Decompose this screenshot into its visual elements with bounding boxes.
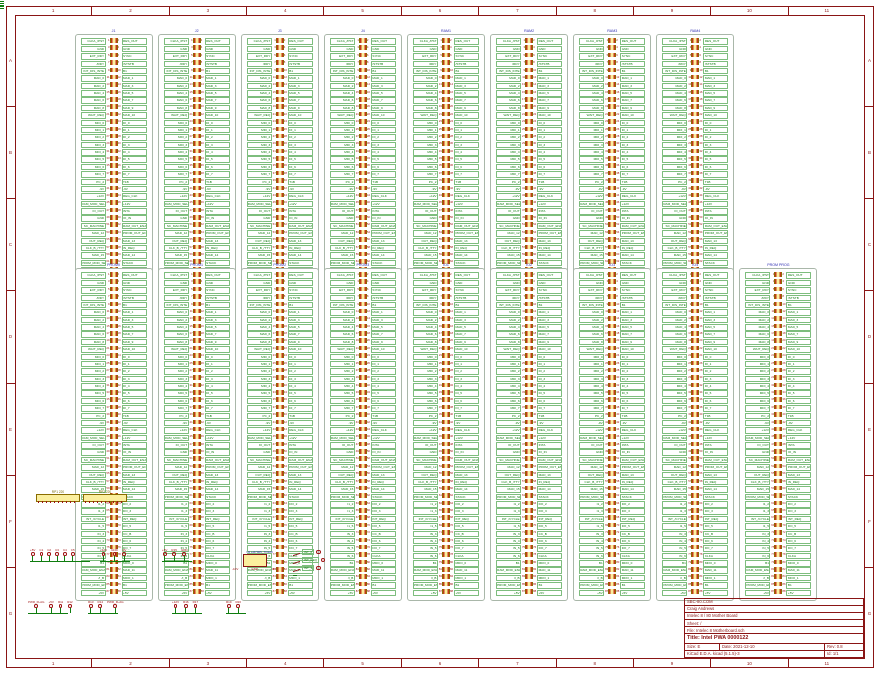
pin-net-label-left[interactable]: MDI_2 bbox=[330, 134, 355, 141]
pin-net-label-left[interactable]: IN_6 bbox=[579, 553, 604, 560]
pin-net-label-left[interactable]: +12V bbox=[745, 427, 770, 434]
pin-net-label-right[interactable]: DI_3 bbox=[205, 376, 230, 383]
pin-net-label-left[interactable]: MDI_6 bbox=[496, 164, 521, 171]
pin-net-label-left[interactable]: WAIT_REQ bbox=[164, 346, 189, 353]
switch-glyph[interactable] bbox=[293, 548, 300, 555]
pin-net-label-left[interactable]: MAD_15 bbox=[496, 486, 521, 493]
pin-net-label-left[interactable]: +12V bbox=[247, 427, 272, 434]
pin-net-label-right[interactable]: MAD_3 bbox=[288, 317, 313, 324]
pin-net-label-right[interactable]: MAD_3 bbox=[122, 83, 147, 90]
pin-net-label-left[interactable]: /RDY bbox=[496, 61, 521, 68]
pin-net-label-right[interactable]: +12V bbox=[122, 201, 147, 208]
pin-net-label-right[interactable]: MAD_14 bbox=[122, 252, 147, 259]
pin-net-label-left[interactable]: IN_3 bbox=[496, 531, 521, 538]
pin-net-label-right[interactable]: PROM_OUT_ENABLE bbox=[537, 230, 562, 237]
pin-net-label-right[interactable]: DO_7 bbox=[454, 545, 479, 552]
pin-net-label-left[interactable]: I1_3 bbox=[662, 508, 687, 515]
pin-net-label-left[interactable]: MDI_4 bbox=[579, 149, 604, 156]
pin-net-label-right[interactable]: CLKA bbox=[703, 553, 728, 560]
pin-net-label-left[interactable]: MAD_4 bbox=[247, 90, 272, 97]
pin-net-label-left[interactable]: MAD_4 bbox=[745, 324, 770, 331]
pin-net-label-right[interactable]: MAD_13 bbox=[537, 472, 562, 479]
pin-net-label-left[interactable]: INT_DIS_INTE bbox=[579, 302, 604, 309]
pin-net-label-right[interactable]: DI_3 bbox=[371, 376, 396, 383]
pin-net-label-right[interactable]: MAD_3 bbox=[205, 317, 230, 324]
card-slot-connector[interactable]: CLKA_/PST12RES_OUTGND34GNDEXT_RDY56SYNC/… bbox=[739, 268, 817, 601]
pin-net-label-right[interactable]: DO_7 bbox=[371, 545, 396, 552]
pin-net-label-left[interactable]: CLKA_/PST bbox=[413, 38, 438, 45]
pin-net-label-right[interactable]: DI_4 bbox=[454, 149, 479, 156]
pin-net-label-right[interactable]: DI_2 bbox=[537, 134, 562, 141]
pin-net-label-right[interactable]: DI_1 bbox=[537, 127, 562, 134]
pin-net-label-left[interactable]: MDI_4 bbox=[413, 149, 438, 156]
pin-net-label-left[interactable]: INT_DIS_INTE bbox=[330, 302, 355, 309]
pin-net-label-left[interactable]: WAIT_REQ bbox=[81, 112, 106, 119]
pin-net-label-left[interactable]: RAM_MOD_SEL bbox=[413, 435, 438, 442]
pin-net-label-left[interactable]: +12V bbox=[496, 427, 521, 434]
pin-net-label-left[interactable]: MAD_0 bbox=[496, 75, 521, 82]
pin-net-label-left[interactable]: CLKA_/PST bbox=[662, 272, 687, 279]
pin-net-label-left[interactable]: EXT_RDY bbox=[330, 53, 355, 60]
pin-net-label-left[interactable]: MDI_3 bbox=[164, 142, 189, 149]
pin-net-label-left[interactable]: MDI_4 bbox=[164, 149, 189, 156]
pin-net-label-left[interactable]: PROM_MOD_ENABLE bbox=[413, 582, 438, 589]
pin-net-label-right[interactable]: DO_2 bbox=[537, 501, 562, 508]
pin-net-label-left[interactable]: IN_4 bbox=[247, 538, 272, 545]
pin-net-label-left[interactable]: /RDY bbox=[579, 295, 604, 302]
pin-net-label-right[interactable]: /STSTB bbox=[371, 295, 396, 302]
pin-net-label-left[interactable]: MAD_6 bbox=[81, 97, 106, 104]
pin-net-label-right[interactable]: MAD_9 bbox=[371, 339, 396, 346]
pin-net-label-right[interactable]: B1 bbox=[371, 68, 396, 75]
pin-net-label-left[interactable]: -9V bbox=[247, 186, 272, 193]
pin-net-label-left[interactable]: PROM_MOD_ENABLE bbox=[496, 582, 521, 589]
pin-net-label-left[interactable]: IN_6 bbox=[662, 553, 687, 560]
pin-net-label-left[interactable]: PROM_MOD_ENABLE bbox=[579, 582, 604, 589]
pin-net-label-left[interactable]: MDI_0 bbox=[662, 354, 687, 361]
pin-net-label-right[interactable]: MAD_9 bbox=[454, 105, 479, 112]
pin-net-label-left[interactable]: GND bbox=[81, 215, 106, 222]
pin-net-label-left[interactable]: MAD_4 bbox=[662, 90, 687, 97]
pin-net-label-left[interactable]: OUT_REQ bbox=[413, 472, 438, 479]
pin-net-label-right[interactable]: CLKA bbox=[620, 553, 645, 560]
pin-net-label-right[interactable]: MAD_1 bbox=[537, 309, 562, 316]
pin-net-label-right[interactable]: -9V bbox=[537, 420, 562, 427]
pin-net-label-left[interactable]: MDI_0 bbox=[745, 354, 770, 361]
pin-net-label-right[interactable]: DI_5 bbox=[620, 390, 645, 397]
pin-net-label-right[interactable]: RAM_OUT_ENABLE bbox=[620, 457, 645, 464]
pin-net-label-left[interactable]: INT_DIS_INTE bbox=[413, 68, 438, 75]
pin-net-label-left[interactable]: MAD_0 bbox=[247, 75, 272, 82]
pin-net-label-right[interactable]: REG_CLK bbox=[205, 427, 230, 434]
pin-net-label-left[interactable]: MDI_1 bbox=[330, 127, 355, 134]
pin-net-label-left[interactable]: RAM_MOD_ENABLE bbox=[579, 567, 604, 574]
pin-net-label-right[interactable]: RES_OUT bbox=[288, 272, 313, 279]
pin-net-label-right[interactable]: GND bbox=[454, 280, 479, 287]
pin-net-label-right[interactable]: MAD_11 bbox=[537, 567, 562, 574]
pin-net-label-left[interactable]: WAIT_REQ bbox=[164, 112, 189, 119]
pin-net-label-left[interactable]: MDI_6 bbox=[579, 398, 604, 405]
pin-net-label-left[interactable]: MAD_0 bbox=[164, 309, 189, 316]
pin-net-label-right[interactable]: IN_REQ bbox=[703, 245, 728, 252]
pin-net-label-left[interactable]: /RDY bbox=[496, 295, 521, 302]
card-slot-connector[interactable]: CLKA_/PST12RES_OUTGND34GNDEXT_RDY56SYNC/… bbox=[407, 268, 485, 601]
pin-net-label-right[interactable]: DI_0 bbox=[703, 354, 728, 361]
pin-net-label-left[interactable]: MDI_3 bbox=[247, 376, 272, 383]
pin-net-label-left[interactable]: CLKA_/PST bbox=[247, 38, 272, 45]
pin-net-label-left[interactable]: B1 bbox=[413, 560, 438, 567]
pin-net-label-left[interactable]: MAD_6 bbox=[579, 97, 604, 104]
pin-net-label-right[interactable]: MAD_3 bbox=[454, 317, 479, 324]
pin-net-label-left[interactable]: MDI_4 bbox=[745, 383, 770, 390]
pin-net-label-left[interactable]: MAD_12 bbox=[164, 230, 189, 237]
pin-net-label-left[interactable]: MAD_4 bbox=[247, 324, 272, 331]
pin-net-label-right[interactable]: INT_REQ bbox=[371, 516, 396, 523]
pin-net-label-right[interactable]: MAD_1 bbox=[122, 309, 147, 316]
pin-net-label-right[interactable]: MAD_13 bbox=[122, 472, 147, 479]
pin-net-label-left[interactable]: IO_OUT bbox=[579, 442, 604, 449]
pin-net-label-right[interactable]: CLKA bbox=[371, 553, 396, 560]
pin-net-label-left[interactable]: RAM_MOD_SEL bbox=[579, 201, 604, 208]
pin-net-label-right[interactable]: PROM_OUT_ENABLE bbox=[620, 464, 645, 471]
pin-net-label-right[interactable]: SYNC bbox=[454, 287, 479, 294]
pin-net-label-right[interactable]: DI_5 bbox=[205, 390, 230, 397]
pin-net-label-left[interactable]: GND bbox=[745, 280, 770, 287]
pin-net-label-right[interactable]: DI_3 bbox=[537, 376, 562, 383]
pin-net-label-right[interactable]: T1B bbox=[703, 179, 728, 186]
pin-net-label-left[interactable]: I1_3 bbox=[247, 508, 272, 515]
pin-net-label-right[interactable]: PROM_OUT_ENABLE bbox=[371, 230, 396, 237]
pin-net-label-right[interactable]: DO_5 bbox=[205, 523, 230, 530]
pin-net-label-left[interactable]: SC_MACHINE bbox=[579, 223, 604, 230]
pin-net-label-right[interactable]: DI_1 bbox=[786, 361, 811, 368]
pin-net-label-left[interactable]: +5V bbox=[413, 590, 438, 597]
pin-net-label-left[interactable]: I1_2 bbox=[496, 501, 521, 508]
pin-net-label-left[interactable]: I1_2 bbox=[662, 501, 687, 508]
pin-net-label-right[interactable]: IN_REQ bbox=[454, 479, 479, 486]
pin-net-label-right[interactable]: CLKA bbox=[786, 553, 811, 560]
pin-net-label-left[interactable]: IN_5 bbox=[662, 545, 687, 552]
pin-net-label-right[interactable]: DI_7 bbox=[288, 405, 313, 412]
resistor-pack-body[interactable] bbox=[83, 494, 127, 502]
pin-net-label-left[interactable]: MAD_6 bbox=[662, 331, 687, 338]
pin-net-label-left[interactable]: MAD_8 bbox=[247, 105, 272, 112]
pin-net-label-right[interactable]: DI_4 bbox=[288, 383, 313, 390]
pin-net-label-left[interactable]: RAM_MOD_SEL bbox=[164, 435, 189, 442]
pin-net-label-left[interactable]: SC_MACHINE bbox=[247, 457, 272, 464]
pin-net-label-right[interactable]: INT_REQ bbox=[786, 516, 811, 523]
pin-net-label-left[interactable]: MAD_15 bbox=[579, 252, 604, 259]
pin-net-label-left[interactable]: MDI_7 bbox=[662, 171, 687, 178]
pin-net-label-left[interactable]: MDI_5 bbox=[164, 390, 189, 397]
pin-net-label-left[interactable]: MDI_2 bbox=[81, 134, 106, 141]
pin-net-label-right[interactable]: DI_5 bbox=[537, 390, 562, 397]
pin-net-label-right[interactable]: DI_3 bbox=[454, 376, 479, 383]
pin-net-label-right[interactable]: RAM_OUT_ENABLE bbox=[620, 223, 645, 230]
pin-net-label-left[interactable]: MDI_1 bbox=[662, 361, 687, 368]
pin-net-label-left[interactable]: MAD_8 bbox=[164, 339, 189, 346]
pin-net-label-left[interactable]: MDI_4 bbox=[164, 383, 189, 390]
pin-net-label-left[interactable]: EXT_RDY bbox=[662, 287, 687, 294]
pin-net-label-right[interactable]: /STSTB bbox=[620, 295, 645, 302]
pin-net-label-left[interactable]: /I_B bbox=[579, 575, 604, 582]
pin-net-label-right[interactable]: DI_5 bbox=[371, 156, 396, 163]
pin-net-label-left[interactable]: INT_DIS_INTE bbox=[164, 302, 189, 309]
pin-net-label-right[interactable]: REG_CLK bbox=[122, 193, 147, 200]
pin-net-label-left[interactable]: MDI_6 bbox=[330, 164, 355, 171]
card-slot-connector[interactable]: CLKA_/PST12RES_OUTGND34GNDEXT_RDY56SYNC/… bbox=[324, 268, 402, 601]
pin-net-label-right[interactable]: MAD_9 bbox=[205, 105, 230, 112]
pin-net-label-right[interactable]: +12V bbox=[205, 435, 230, 442]
pin-net-label-right[interactable]: DI_0 bbox=[454, 354, 479, 361]
pin-net-label-right[interactable]: -9V bbox=[288, 420, 313, 427]
pin-net-label-right[interactable]: REG_CLK bbox=[205, 193, 230, 200]
pin-net-label-left[interactable]: MDI_7 bbox=[330, 171, 355, 178]
pin-net-label-right[interactable]: -9V bbox=[205, 420, 230, 427]
pin-net-label-left[interactable]: CLKA_/PST bbox=[496, 272, 521, 279]
pin-net-label-right[interactable]: PROM_OUT_ENABLE bbox=[122, 230, 147, 237]
pin-net-label-right[interactable]: MAD_7 bbox=[537, 97, 562, 104]
pin-net-label-left[interactable]: CLK_B_/TTY bbox=[247, 479, 272, 486]
pin-net-label-right[interactable]: SYNC bbox=[371, 287, 396, 294]
pin-net-label-left[interactable]: MAD_12 bbox=[247, 230, 272, 237]
pin-net-label-right[interactable]: MAD_14 bbox=[205, 486, 230, 493]
pin-net-label-right[interactable]: B1 bbox=[454, 582, 479, 589]
pin-net-label-left[interactable]: SC_MACHINE bbox=[413, 223, 438, 230]
pin-net-label-left[interactable]: PROM_MOD_SEL bbox=[247, 494, 272, 501]
pin-net-label-right[interactable]: RES_OUT bbox=[620, 272, 645, 279]
pin-net-label-right[interactable]: MDO_1 bbox=[454, 575, 479, 582]
pin-net-label-right[interactable]: DO_5 bbox=[371, 523, 396, 530]
pin-net-label-right[interactable]: DI_5 bbox=[122, 390, 147, 397]
pin-net-label-left[interactable]: -9V bbox=[662, 420, 687, 427]
pin-net-label-right[interactable]: MAD_3 bbox=[288, 83, 313, 90]
pin-net-label-right[interactable]: B1 bbox=[786, 302, 811, 309]
pin-net-label-right[interactable]: B1 bbox=[288, 302, 313, 309]
pin-net-label-left[interactable]: EXT_RDY bbox=[164, 53, 189, 60]
pin-net-label-left[interactable]: MAD_8 bbox=[81, 105, 106, 112]
pin-net-label-right[interactable]: MAD_9 bbox=[288, 339, 313, 346]
pin-net-label-right[interactable]: DI_4 bbox=[371, 383, 396, 390]
pin-net-label-right[interactable]: DI_3 bbox=[620, 142, 645, 149]
pin-net-label-right[interactable]: INT_REQ bbox=[537, 516, 562, 523]
pin-net-label-left[interactable]: MDI_2 bbox=[164, 368, 189, 375]
pin-net-label-left[interactable]: MDI_7 bbox=[579, 405, 604, 412]
pin-net-label-right[interactable]: DI_4 bbox=[371, 149, 396, 156]
pin-net-label-right[interactable]: MAD_14 bbox=[371, 252, 396, 259]
pin-net-label-right[interactable]: IN_REQ bbox=[786, 479, 811, 486]
pin-net-label-left[interactable]: SC_MACHINE bbox=[330, 223, 355, 230]
pin-net-label-left[interactable]: I1_5 bbox=[330, 523, 355, 530]
pin-net-label-left[interactable]: MAD_4 bbox=[164, 324, 189, 331]
pin-net-label-right[interactable]: -9V bbox=[122, 186, 147, 193]
pin-net-label-right[interactable]: DI_7 bbox=[620, 405, 645, 412]
pin-net-label-right[interactable]: IO_IN bbox=[786, 449, 811, 456]
pin-net-label-right[interactable]: INTA bbox=[454, 208, 479, 215]
pin-net-label-left[interactable]: INT_DIS_INTE bbox=[81, 302, 106, 309]
pin-net-label-left[interactable]: I1_5 bbox=[81, 523, 106, 530]
pin-net-label-right[interactable]: T1B bbox=[371, 413, 396, 420]
pin-net-label-left[interactable]: MDI_6 bbox=[330, 398, 355, 405]
pin-net-label-right[interactable]: -9V bbox=[371, 420, 396, 427]
pin-net-label-left[interactable]: OUT_REQ bbox=[81, 238, 106, 245]
pin-net-label-right[interactable]: IN_REQ bbox=[205, 479, 230, 486]
pin-net-label-left[interactable]: MAD_2 bbox=[81, 83, 106, 90]
pin-net-label-right[interactable]: MAD_7 bbox=[371, 331, 396, 338]
pin-net-label-left[interactable]: IN_5 bbox=[745, 545, 770, 552]
pin-net-label-left[interactable]: /RDY bbox=[81, 295, 106, 302]
pin-net-label-right[interactable]: DI_5 bbox=[786, 390, 811, 397]
pin-net-label-left[interactable]: IO_OUT bbox=[164, 208, 189, 215]
pin-net-label-right[interactable]: B1 bbox=[288, 582, 313, 589]
pin-net-label-left[interactable]: GND bbox=[579, 449, 604, 456]
pin-net-label-left[interactable]: +5V bbox=[579, 590, 604, 597]
pin-net-label-left[interactable]: IN_3 bbox=[164, 531, 189, 538]
pin-net-label-left[interactable]: IO_OUT bbox=[662, 442, 687, 449]
pin-net-label-right[interactable]: GND bbox=[537, 280, 562, 287]
pin-net-label-left[interactable]: MDI_2 bbox=[496, 134, 521, 141]
pin-net-label-right[interactable]: -9V bbox=[703, 420, 728, 427]
pin-net-label-right[interactable]: GND bbox=[205, 280, 230, 287]
pin-net-label-left[interactable]: I1_5 bbox=[247, 523, 272, 530]
pin-net-label-right[interactable]: GND bbox=[371, 46, 396, 53]
pin-net-label-right[interactable]: DI_4 bbox=[205, 149, 230, 156]
pin-net-label-left[interactable]: /I_B bbox=[496, 575, 521, 582]
pin-net-label-right[interactable]: DO_3 bbox=[205, 508, 230, 515]
pin-net-label-right[interactable]: B1 bbox=[288, 68, 313, 75]
pin-net-label-left[interactable]: MDI_4 bbox=[81, 149, 106, 156]
pin-net-label-right[interactable]: CC_B bbox=[205, 531, 230, 538]
pin-net-label-left[interactable]: MDI_6 bbox=[164, 164, 189, 171]
pin-net-label-left[interactable]: GND bbox=[496, 215, 521, 222]
pin-net-label-left[interactable]: GND bbox=[662, 449, 687, 456]
pin-net-label-left[interactable]: MAD_12 bbox=[662, 464, 687, 471]
pin-net-label-left[interactable]: MAD_12 bbox=[496, 464, 521, 471]
pin-net-label-left[interactable]: EXT_RDY bbox=[413, 53, 438, 60]
pin-net-label-right[interactable]: SYNC bbox=[205, 53, 230, 60]
pin-net-label-left[interactable]: MDI_0 bbox=[579, 354, 604, 361]
pin-net-label-right[interactable]: MAD_9 bbox=[703, 339, 728, 346]
pin-net-label-right[interactable]: MAD_1 bbox=[205, 75, 230, 82]
pin-net-label-right[interactable]: DO_5 bbox=[620, 523, 645, 530]
pin-net-label-right[interactable]: RES_OUT bbox=[122, 272, 147, 279]
pin-net-label-right[interactable]: T1B bbox=[371, 179, 396, 186]
pin-net-label-left[interactable]: IO_OUT bbox=[413, 442, 438, 449]
pin-net-label-right[interactable]: DO_3 bbox=[786, 508, 811, 515]
pullup-rail-cluster[interactable]: R19R20 bbox=[226, 600, 241, 613]
pin-net-label-right[interactable]: SYNC bbox=[537, 287, 562, 294]
pin-net-label-left[interactable]: MDI_0 bbox=[662, 120, 687, 127]
pullup-rail-cluster[interactable]: PWR_FLAG+5VR11R12 bbox=[28, 600, 73, 613]
pin-net-label-right[interactable]: DI_3 bbox=[122, 376, 147, 383]
pin-net-label-left[interactable]: CLKA_/PST bbox=[164, 272, 189, 279]
pin-net-label-left[interactable]: CLK_B_/TTY bbox=[330, 245, 355, 252]
pin-net-label-right[interactable]: DO_2 bbox=[371, 501, 396, 508]
pin-net-label-right[interactable]: PROM_OUT_ENABLE bbox=[205, 464, 230, 471]
pin-net-label-left[interactable]: MAD_15 bbox=[247, 252, 272, 259]
pin-net-label-left[interactable]: IN_5 bbox=[330, 545, 355, 552]
pin-net-label-right[interactable]: RAM_OUT_ENABLE bbox=[537, 223, 562, 230]
pin-net-label-left[interactable]: -9V bbox=[164, 420, 189, 427]
pin-net-label-right[interactable]: DI_7 bbox=[454, 405, 479, 412]
pin-net-label-left[interactable]: RAM_MOD_SEL bbox=[496, 435, 521, 442]
pin-net-label-right[interactable]: MAD_5 bbox=[786, 324, 811, 331]
pin-net-label-right[interactable]: GND bbox=[703, 280, 728, 287]
pin-net-label-left[interactable]: MDI_7 bbox=[496, 405, 521, 412]
pin-net-label-right[interactable]: DI_3 bbox=[454, 142, 479, 149]
pin-net-label-right[interactable]: PROM_OUT_ENABLE bbox=[122, 464, 147, 471]
pin-net-label-left[interactable]: MAD_12 bbox=[496, 230, 521, 237]
pin-net-label-right[interactable]: DO_6 bbox=[537, 538, 562, 545]
pin-net-label-left[interactable]: SC_MACHINE bbox=[247, 223, 272, 230]
pin-net-label-left[interactable]: -9V bbox=[496, 420, 521, 427]
pin-net-label-left[interactable]: CLK_B_/TTY bbox=[496, 245, 521, 252]
pin-net-label-left[interactable]: OUT_REQ bbox=[413, 238, 438, 245]
pin-net-label-right[interactable]: MAD_13 bbox=[454, 472, 479, 479]
pin-net-label-left[interactable]: INT_/CYCLE bbox=[579, 516, 604, 523]
pin-net-label-right[interactable]: IN_REQ bbox=[620, 479, 645, 486]
pin-net-label-left[interactable]: I1_5 bbox=[413, 523, 438, 530]
pin-net-label-right[interactable]: RAM_OUT_ENABLE bbox=[454, 457, 479, 464]
pin-net-label-right[interactable]: DI_5 bbox=[620, 156, 645, 163]
pin-net-label-left[interactable]: PROM_MOD_SEL bbox=[745, 494, 770, 501]
pin-net-label-right[interactable]: STACK bbox=[786, 494, 811, 501]
pin-net-label-right[interactable]: REG_CLK bbox=[454, 427, 479, 434]
pin-net-label-left[interactable]: +12V bbox=[662, 193, 687, 200]
pin-net-label-right[interactable]: B1 bbox=[620, 68, 645, 75]
pin-net-label-left[interactable]: MDI_0 bbox=[164, 354, 189, 361]
pin-net-label-left[interactable]: RAM_MOD_SEL bbox=[745, 435, 770, 442]
pin-net-label-right[interactable]: +5V bbox=[205, 590, 230, 597]
pin-net-label-left[interactable]: MAD_0 bbox=[662, 309, 687, 316]
pin-net-label-left[interactable]: MDI_0 bbox=[413, 354, 438, 361]
pin-net-label-right[interactable]: DI_4 bbox=[786, 383, 811, 390]
pin-net-label-left[interactable]: MDI_4 bbox=[330, 149, 355, 156]
pin-net-label-right[interactable]: DO_5 bbox=[703, 523, 728, 530]
pin-net-label-right[interactable]: DO_2 bbox=[703, 501, 728, 508]
pin-net-label-left[interactable]: MDI_0 bbox=[247, 354, 272, 361]
pin-net-label-left[interactable]: MAD_15 bbox=[496, 252, 521, 259]
pin-net-label-right[interactable]: REG_CLK bbox=[371, 193, 396, 200]
pin-net-label-right[interactable]: DI_6 bbox=[703, 398, 728, 405]
pin-net-label-right[interactable]: MAD_10 bbox=[703, 112, 728, 119]
pin-net-label-right[interactable]: DI_6 bbox=[703, 164, 728, 171]
pin-net-label-right[interactable]: CLKA bbox=[454, 553, 479, 560]
pin-net-label-left[interactable]: SC_MACHINE bbox=[81, 223, 106, 230]
pin-net-label-right[interactable]: DI_7 bbox=[288, 171, 313, 178]
pin-net-label-left[interactable]: IO_OUT bbox=[247, 208, 272, 215]
pin-net-label-right[interactable]: DO_6 bbox=[122, 538, 147, 545]
pin-net-label-left[interactable]: -9V bbox=[579, 186, 604, 193]
pin-net-label-left[interactable]: MDI_2 bbox=[579, 368, 604, 375]
pin-net-label-left[interactable]: -9V bbox=[81, 186, 106, 193]
pin-net-label-right[interactable]: DO_6 bbox=[703, 538, 728, 545]
pin-net-label-right[interactable]: MAD_7 bbox=[122, 331, 147, 338]
pin-net-label-right[interactable]: MAD_13 bbox=[620, 472, 645, 479]
pin-net-label-right[interactable]: MAD_13 bbox=[205, 472, 230, 479]
pin-net-label-right[interactable]: MAD_10 bbox=[703, 346, 728, 353]
pin-net-label-right[interactable]: B1 bbox=[454, 68, 479, 75]
pin-net-label-right[interactable]: T1B bbox=[122, 179, 147, 186]
pin-net-label-right[interactable]: MAD_9 bbox=[122, 105, 147, 112]
pin-net-label-right[interactable]: +12V bbox=[703, 435, 728, 442]
pin-net-label-right[interactable]: MAD_14 bbox=[703, 486, 728, 493]
pin-net-label-right[interactable]: RES_OUT bbox=[122, 38, 147, 45]
pin-net-label-left[interactable]: MAD_0 bbox=[247, 309, 272, 316]
pin-net-label-right[interactable]: CLKA bbox=[205, 553, 230, 560]
pin-net-label-right[interactable]: MAD_14 bbox=[786, 486, 811, 493]
pin-net-label-left[interactable]: GND bbox=[330, 449, 355, 456]
